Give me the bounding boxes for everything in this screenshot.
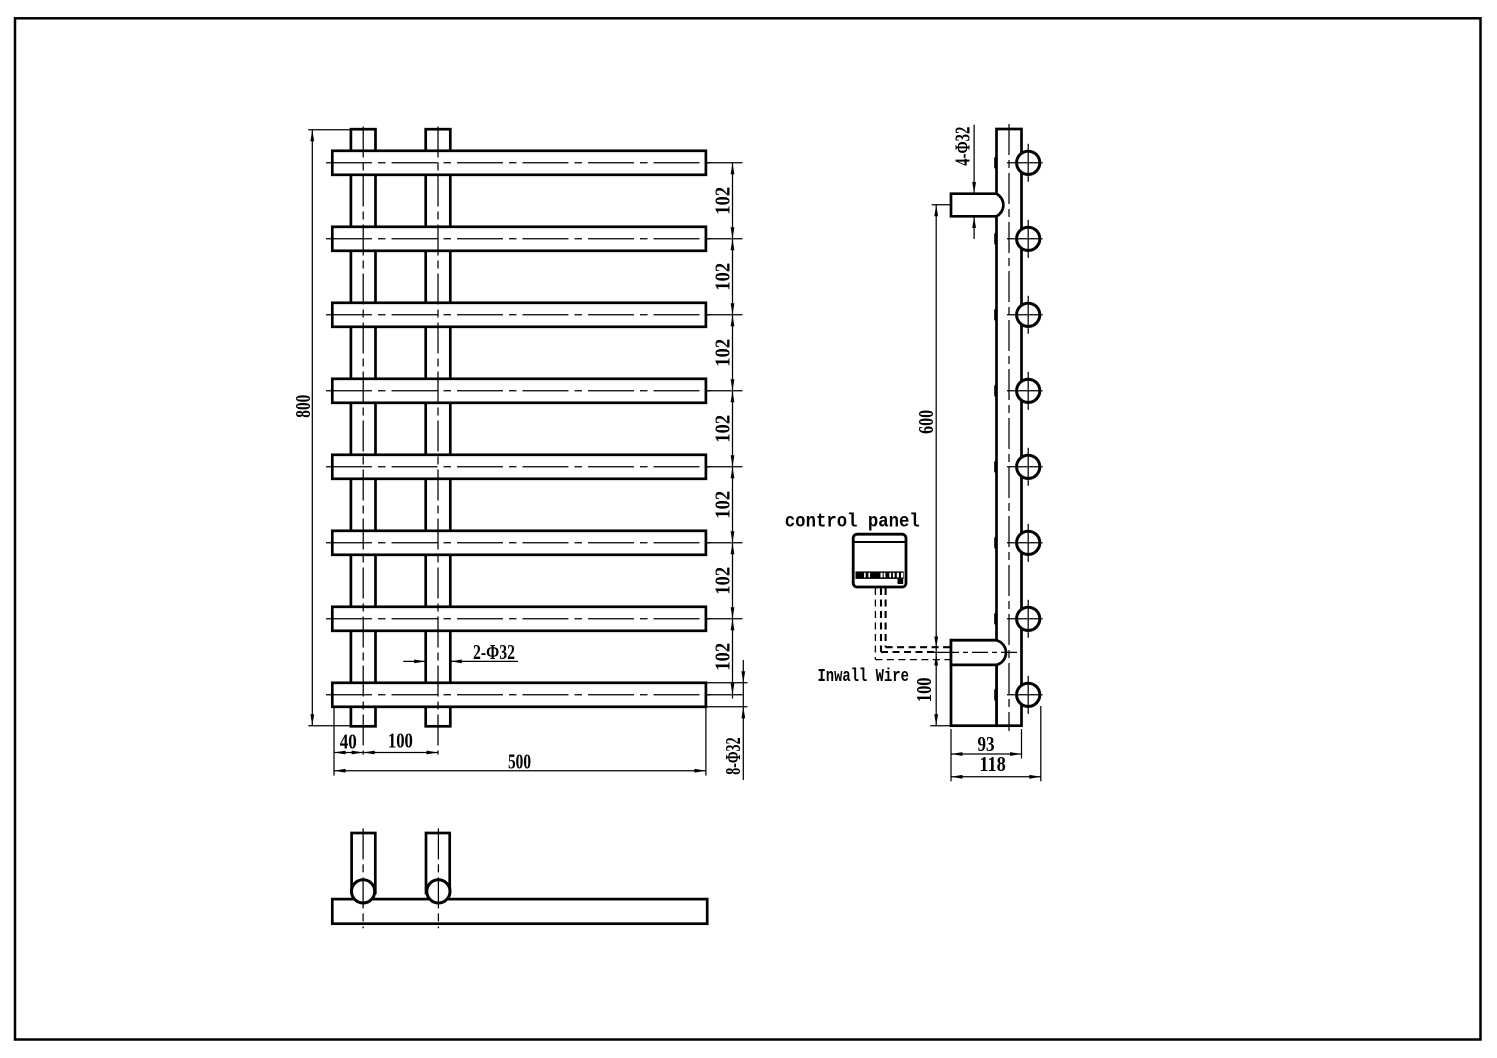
svg-text:4-Φ32: 4-Φ32 — [950, 127, 974, 166]
svg-text:8-Φ32: 8-Φ32 — [721, 737, 745, 774]
svg-text:102: 102 — [711, 339, 735, 367]
svg-text:control panel: control panel — [785, 511, 920, 533]
svg-text:600: 600 — [914, 410, 938, 434]
svg-text:102: 102 — [711, 415, 735, 443]
svg-text:100: 100 — [388, 729, 413, 753]
svg-text:Inwall Wire: Inwall Wire — [818, 666, 909, 687]
svg-text:40: 40 — [340, 729, 357, 753]
svg-text:100: 100 — [912, 678, 936, 703]
svg-text:800: 800 — [291, 395, 315, 418]
svg-text:102: 102 — [711, 567, 735, 595]
svg-text:118: 118 — [979, 752, 1006, 776]
svg-text:102: 102 — [711, 187, 735, 215]
svg-text:102: 102 — [711, 643, 735, 671]
svg-text:102: 102 — [711, 263, 735, 291]
svg-text:2-Φ32: 2-Φ32 — [473, 640, 515, 664]
svg-text:102: 102 — [711, 491, 735, 519]
svg-text:500: 500 — [508, 750, 531, 774]
